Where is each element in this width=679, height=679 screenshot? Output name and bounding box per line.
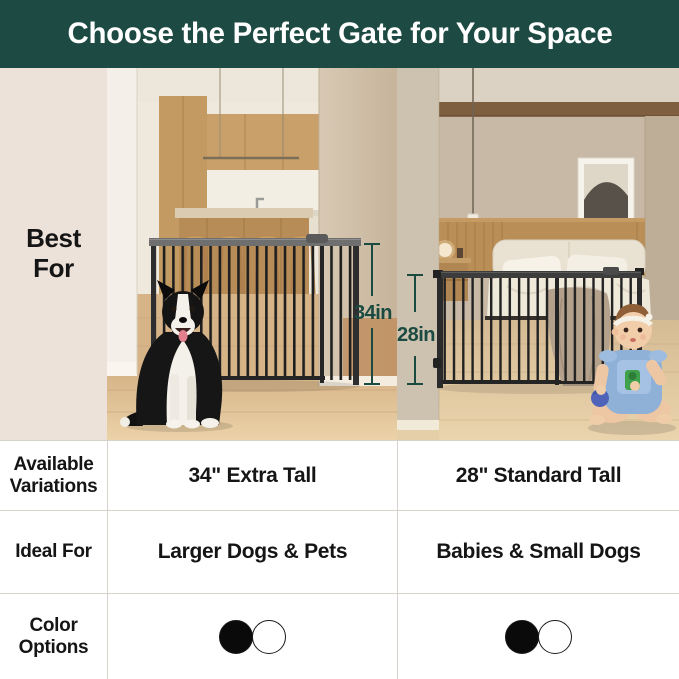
kitchen-island-illustration: [175, 208, 313, 218]
color-swatch-black: [505, 620, 539, 654]
variation-right: 28" Standard Tall: [397, 440, 679, 510]
comparison-grid: Best For: [0, 68, 679, 679]
height-annotation-left: 34in: [354, 302, 392, 324]
best-for-cell: Best For: [0, 68, 107, 440]
row-label-available-variations: Available Variations: [0, 440, 107, 510]
row-label-ideal-for: Ideal For: [0, 510, 107, 593]
gate-comparison-infographic: Choose the Perfect Gate for Your Space B…: [0, 0, 679, 679]
color-swatch-white: [252, 620, 286, 654]
wall-art-illustration: [578, 158, 634, 224]
ideal-for-right: Babies & Small Dogs: [397, 510, 679, 593]
kitchen-scene: 34in: [107, 68, 397, 440]
variation-left: 34" Extra Tall: [107, 440, 397, 510]
photo-bedroom-baby: 28in: [397, 68, 679, 440]
best-for-label: Best For: [23, 224, 85, 284]
header-banner: Choose the Perfect Gate for Your Space: [0, 0, 679, 68]
color-options-right: [397, 593, 679, 679]
height-annotation-right: 28in: [397, 324, 435, 346]
ideal-for-left: Larger Dogs & Pets: [107, 510, 397, 593]
color-options-left: [107, 593, 397, 679]
bedroom-scene: 28in: [397, 68, 679, 440]
color-swatch-black: [219, 620, 253, 654]
row-label-color-options: Color Options: [0, 593, 107, 679]
photo-kitchen-dog: 34in: [107, 68, 397, 440]
color-swatch-white: [538, 620, 572, 654]
page-title: Choose the Perfect Gate for Your Space: [67, 17, 612, 51]
